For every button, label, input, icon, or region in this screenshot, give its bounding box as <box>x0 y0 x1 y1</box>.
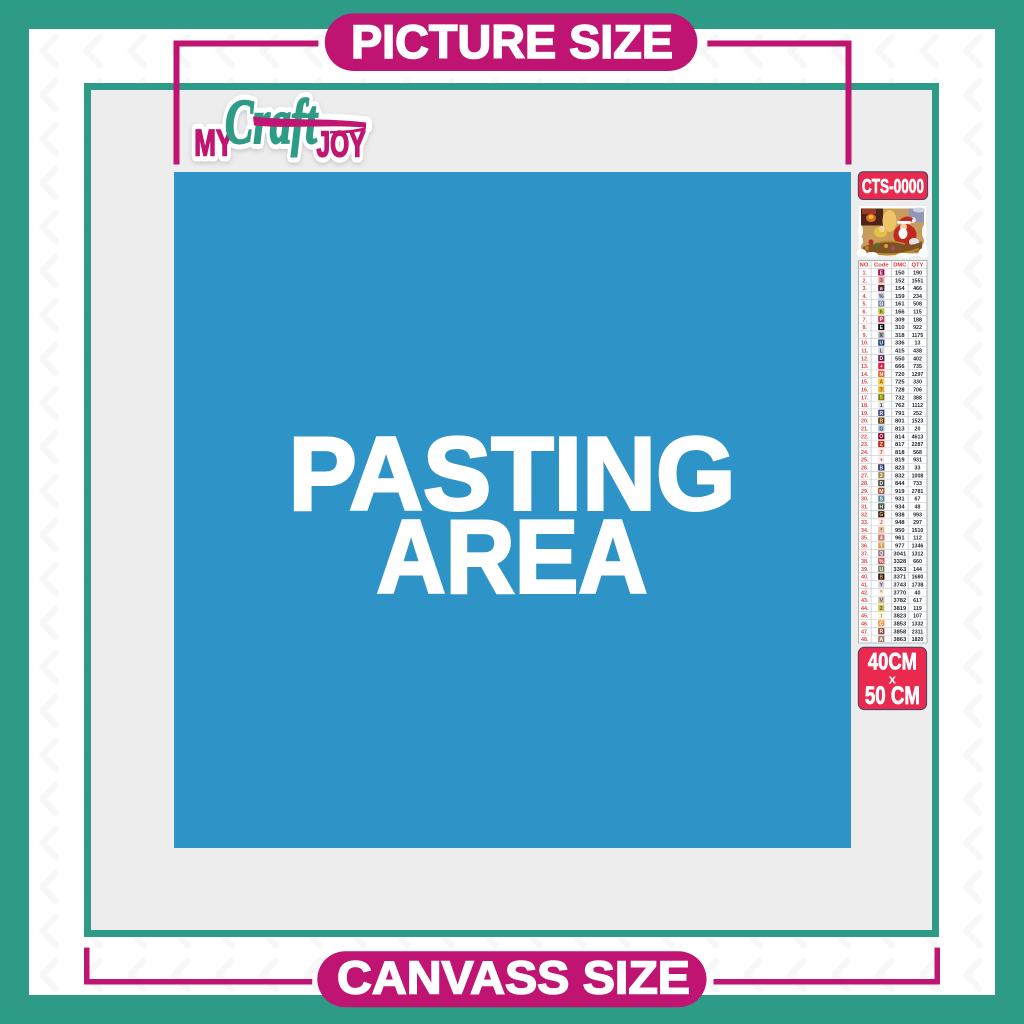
svg-text:30.: 30. <box>861 497 869 503</box>
svg-text:47.: 47. <box>861 629 869 635</box>
svg-text:19.: 19. <box>861 411 869 417</box>
svg-text:762: 762 <box>895 403 905 409</box>
svg-text:4: 4 <box>880 536 883 542</box>
svg-text:922: 922 <box>913 325 922 331</box>
svg-text:1510: 1510 <box>912 528 924 534</box>
svg-text:^: ^ <box>880 590 883 596</box>
svg-text:3: 3 <box>880 473 883 479</box>
svg-text:26.: 26. <box>861 466 869 472</box>
svg-text:48: 48 <box>915 505 921 511</box>
svg-text:6.: 6. <box>863 310 868 316</box>
svg-text:5: 5 <box>880 395 883 401</box>
svg-text:33.: 33. <box>861 520 869 526</box>
svg-text:G: G <box>879 302 883 308</box>
svg-text:29.: 29. <box>861 489 869 495</box>
svg-text:28.: 28. <box>861 481 869 487</box>
svg-text:C: C <box>879 621 883 627</box>
svg-text:234: 234 <box>913 294 922 300</box>
svg-text:817: 817 <box>895 442 905 448</box>
svg-text:813: 813 <box>895 427 905 433</box>
svg-text:27.: 27. <box>861 473 869 479</box>
svg-text:8.: 8. <box>863 325 868 331</box>
svg-text:438: 438 <box>913 349 922 355</box>
svg-text:DMC: DMC <box>893 263 907 269</box>
svg-text:4.: 4. <box>863 294 868 300</box>
svg-text:*: * <box>880 528 882 534</box>
svg-text:1297: 1297 <box>912 372 924 378</box>
svg-text:3328: 3328 <box>893 559 907 565</box>
svg-text:33: 33 <box>915 466 921 472</box>
svg-text:34.: 34. <box>861 528 869 534</box>
svg-text:N: N <box>879 372 883 378</box>
svg-text:814: 814 <box>895 434 905 440</box>
svg-text:3041: 3041 <box>893 551 907 557</box>
svg-text:B: B <box>879 419 883 425</box>
svg-text:45.: 45. <box>861 614 869 620</box>
svg-text:20: 20 <box>915 427 921 433</box>
svg-text:7: 7 <box>880 450 883 456</box>
svg-text:1332: 1332 <box>912 622 924 628</box>
svg-text:D: D <box>879 356 883 362</box>
svg-text:32.: 32. <box>861 512 869 518</box>
svg-text:3770: 3770 <box>893 590 906 596</box>
svg-text:Code: Code <box>874 263 889 269</box>
svg-text:107: 107 <box>913 614 922 620</box>
svg-text:732: 732 <box>895 395 905 401</box>
svg-text:1680: 1680 <box>912 575 924 581</box>
svg-text:+: + <box>880 458 883 464</box>
svg-text:G: G <box>879 426 883 432</box>
svg-text:3823: 3823 <box>893 614 907 620</box>
svg-text:3853: 3853 <box>893 622 907 628</box>
svg-text:5.: 5. <box>863 302 868 308</box>
svg-text:25.: 25. <box>861 458 869 464</box>
svg-text:G: G <box>879 512 883 518</box>
svg-text:568: 568 <box>913 450 922 456</box>
svg-text:QTY: QTY <box>912 263 924 269</box>
svg-text:115: 115 <box>913 310 922 316</box>
svg-text:50 CM: 50 CM <box>865 682 920 710</box>
svg-text:844: 844 <box>895 481 905 487</box>
svg-text:7: 7 <box>880 387 883 393</box>
svg-text:46.: 46. <box>861 622 869 628</box>
svg-text:938: 938 <box>895 512 905 518</box>
svg-text:1820: 1820 <box>912 637 924 643</box>
svg-text:801: 801 <box>895 419 905 425</box>
svg-text:166: 166 <box>895 310 905 316</box>
svg-text:24.: 24. <box>861 450 869 456</box>
svg-text:993: 993 <box>913 512 922 518</box>
svg-text:297: 297 <box>913 520 922 526</box>
svg-text:706: 706 <box>913 388 922 394</box>
svg-text:21.: 21. <box>861 427 869 433</box>
svg-text:38.: 38. <box>861 559 869 565</box>
svg-text:931: 931 <box>895 497 905 503</box>
svg-text:22.: 22. <box>861 434 869 440</box>
svg-text:415: 415 <box>895 349 905 355</box>
svg-text:2781: 2781 <box>912 489 924 495</box>
svg-text:T: T <box>880 543 883 549</box>
svg-text:154: 154 <box>895 286 905 292</box>
svg-text:3858: 3858 <box>893 629 907 635</box>
svg-text:14.: 14. <box>861 372 869 378</box>
svg-text:823: 823 <box>895 466 905 472</box>
svg-text:1523: 1523 <box>912 419 924 425</box>
svg-text:660: 660 <box>913 559 922 565</box>
svg-text:67: 67 <box>915 497 921 503</box>
svg-text:13.: 13. <box>861 364 869 370</box>
svg-text:310: 310 <box>895 325 905 331</box>
svg-text:3363: 3363 <box>893 567 907 573</box>
svg-text:a: a <box>880 286 883 292</box>
svg-text:U: U <box>879 567 883 573</box>
svg-text:112: 112 <box>913 536 922 542</box>
svg-text:Q: Q <box>879 551 883 557</box>
svg-text:1112: 1112 <box>912 403 923 409</box>
svg-text:2.: 2. <box>863 278 868 284</box>
svg-text:7.: 7. <box>863 317 868 323</box>
svg-text:336: 336 <box>895 341 905 347</box>
svg-text:330: 330 <box>913 380 922 386</box>
svg-text:O: O <box>879 434 883 440</box>
svg-text:666: 666 <box>895 364 905 370</box>
svg-text:318: 318 <box>895 333 905 339</box>
svg-text:R: R <box>879 411 883 417</box>
svg-text:40.: 40. <box>861 575 869 581</box>
svg-text:1312: 1312 <box>912 551 924 557</box>
svg-text:3371: 3371 <box>893 575 907 581</box>
svg-text:733: 733 <box>913 481 922 487</box>
svg-text:152: 152 <box>895 278 905 284</box>
svg-text:12.: 12. <box>861 356 869 362</box>
svg-text:13: 13 <box>915 341 921 347</box>
svg-text:144: 144 <box>913 567 922 573</box>
svg-text:9.: 9. <box>863 333 868 339</box>
svg-text:PICTURE SIZE: PICTURE SIZE <box>351 16 673 69</box>
svg-text:D: D <box>879 481 883 487</box>
svg-text:728: 728 <box>895 388 905 394</box>
svg-text:31.: 31. <box>861 505 869 511</box>
svg-text:36.: 36. <box>861 544 869 550</box>
svg-text:3: 3 <box>880 278 883 284</box>
svg-text:11.: 11. <box>861 349 869 355</box>
svg-text:3819: 3819 <box>893 606 907 612</box>
svg-text:948: 948 <box>895 520 905 526</box>
svg-text:1175: 1175 <box>912 333 924 339</box>
svg-text:40: 40 <box>915 590 921 596</box>
svg-text:M: M <box>879 489 883 495</box>
svg-text:150: 150 <box>895 271 905 277</box>
svg-text:CANVASS SIZE: CANVASS SIZE <box>337 951 690 1003</box>
svg-text:4613: 4613 <box>912 434 924 440</box>
svg-text:35.: 35. <box>861 536 869 542</box>
svg-text:15.: 15. <box>861 380 869 386</box>
svg-text:725: 725 <box>895 380 905 386</box>
svg-text:2287: 2287 <box>912 442 924 448</box>
svg-text:A: A <box>879 380 883 386</box>
svg-text:41.: 41. <box>861 583 869 589</box>
svg-text:950: 950 <box>895 528 905 534</box>
svg-text:508: 508 <box>913 302 922 308</box>
svg-text:159: 159 <box>895 294 905 300</box>
svg-text:3743: 3743 <box>893 583 907 589</box>
svg-text:1.: 1. <box>863 271 868 277</box>
svg-text:2: 2 <box>880 606 883 612</box>
svg-text:388: 388 <box>913 395 922 401</box>
svg-text:R: R <box>879 629 883 635</box>
svg-text:309: 309 <box>895 317 905 323</box>
svg-text:402: 402 <box>913 356 922 362</box>
svg-text:735: 735 <box>913 364 922 370</box>
svg-text:466: 466 <box>913 286 922 292</box>
svg-text:%: % <box>879 294 884 300</box>
svg-text:818: 818 <box>895 450 905 456</box>
svg-text:43.: 43. <box>861 598 869 604</box>
svg-text:791: 791 <box>895 411 905 417</box>
svg-text:20.: 20. <box>861 419 869 425</box>
svg-text:Z: Z <box>880 442 883 448</box>
svg-text:934: 934 <box>895 505 905 511</box>
svg-text:2311: 2311 <box>912 629 924 635</box>
svg-text:1008: 1008 <box>912 473 924 479</box>
svg-text:18.: 18. <box>861 403 869 409</box>
svg-text:42.: 42. <box>861 590 869 596</box>
svg-text:39.: 39. <box>861 567 869 573</box>
svg-text:188: 188 <box>913 317 922 323</box>
svg-text:48.: 48. <box>861 637 869 643</box>
svg-text:H: H <box>879 504 883 510</box>
svg-text:A: A <box>879 637 883 643</box>
svg-text:720: 720 <box>895 372 905 378</box>
svg-text:3782: 3782 <box>893 598 906 604</box>
svg-text:U: U <box>879 341 883 347</box>
svg-text:190: 190 <box>913 271 922 277</box>
svg-text:1346: 1346 <box>912 544 924 550</box>
svg-text:AREA: AREA <box>377 500 648 616</box>
svg-text:37.: 37. <box>861 551 869 557</box>
svg-text:17.: 17. <box>861 395 869 401</box>
svg-text:1551: 1551 <box>912 278 924 284</box>
svg-text:10.: 10. <box>861 341 869 347</box>
svg-text:16.: 16. <box>861 388 869 394</box>
svg-text:B: B <box>879 465 883 471</box>
svg-text:1738: 1738 <box>912 583 924 589</box>
svg-text:h: h <box>880 309 883 315</box>
svg-text:252: 252 <box>913 411 922 417</box>
svg-text:J: J <box>880 520 883 526</box>
svg-text:3.: 3. <box>863 286 868 292</box>
svg-text:931: 931 <box>913 458 922 464</box>
svg-text:23.: 23. <box>861 442 869 448</box>
svg-text:%: % <box>879 559 884 565</box>
svg-text:L: L <box>880 348 883 354</box>
svg-text:161: 161 <box>895 302 905 308</box>
svg-text:1: 1 <box>880 403 883 409</box>
svg-text:617: 617 <box>913 598 922 604</box>
svg-text:B: B <box>879 575 883 581</box>
svg-text:44.: 44. <box>861 606 869 612</box>
svg-text:119: 119 <box>913 606 922 612</box>
svg-text:819: 819 <box>895 458 905 464</box>
svg-text:CTS-0000: CTS-0000 <box>862 176 924 198</box>
svg-text:919: 919 <box>895 489 905 495</box>
svg-text:3863: 3863 <box>893 637 907 643</box>
svg-text:NO.: NO. <box>860 263 871 269</box>
svg-text:977: 977 <box>895 544 905 550</box>
svg-text:550: 550 <box>895 356 905 362</box>
svg-text:961: 961 <box>895 536 905 542</box>
svg-text:+: + <box>880 364 883 370</box>
svg-text:832: 832 <box>895 473 905 479</box>
